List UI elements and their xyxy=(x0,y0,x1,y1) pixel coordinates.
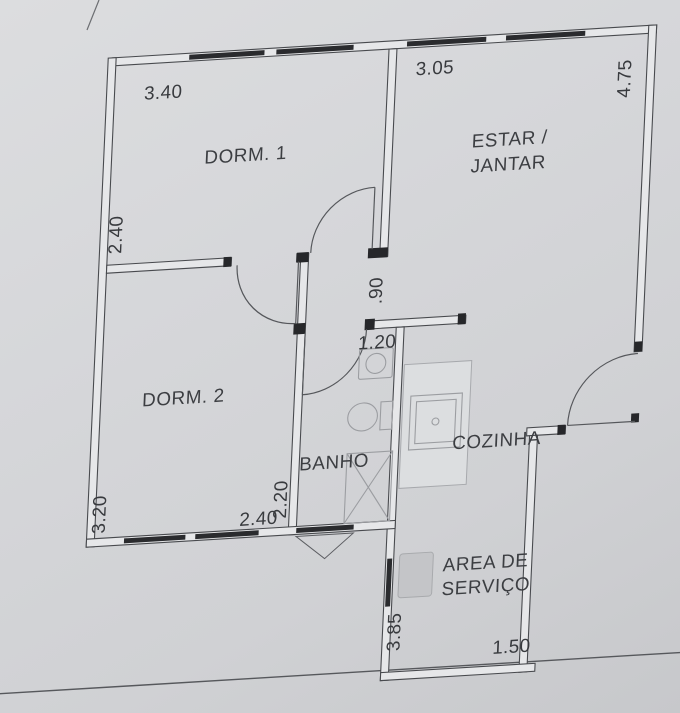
room-label-dorm2: DORM. 2 xyxy=(142,385,225,411)
wall-left xyxy=(86,58,116,548)
dim-estar-width: 3.05 xyxy=(415,57,454,80)
ground-line xyxy=(0,651,680,697)
wall-top xyxy=(112,25,657,66)
room-label-estar-line2: JANTAR xyxy=(470,152,546,178)
door-swing-dorm1 xyxy=(311,187,375,253)
floor-plan-drawing: DORM. 1 ESTAR / JANTAR DORM. 2 BANHO COZ… xyxy=(0,0,680,713)
washbasin-bowl-icon xyxy=(366,353,387,374)
paper-edge-line xyxy=(87,0,99,30)
door-swing-dorm2 xyxy=(234,262,298,328)
window-banho xyxy=(296,527,353,530)
floorplan-photo: DORM. 1 ESTAR / JANTAR DORM. 2 BANHO COZ… xyxy=(0,0,680,713)
dim-area-height: 3.85 xyxy=(384,612,407,652)
window-area-servico xyxy=(388,559,390,607)
toilet-tank-icon xyxy=(380,401,393,430)
door-leaf-exterior xyxy=(568,421,635,425)
wall-hall-top-a xyxy=(106,258,231,274)
wall-banho-top xyxy=(369,315,466,329)
wall-right-estar xyxy=(634,25,657,352)
walls xyxy=(79,25,656,699)
door-leaf-dorm1 xyxy=(372,187,375,249)
dim-dorm1-width: 3.40 xyxy=(144,81,183,104)
door-swing-banho xyxy=(302,329,366,395)
room-label-area-line1: AREA DE xyxy=(442,550,529,576)
dim-area-width: 1.50 xyxy=(492,636,531,659)
dim-dorm2-height: 3.20 xyxy=(89,495,112,535)
banho-high-window-symbol xyxy=(295,533,354,560)
room-label-cozinha: COZINHA xyxy=(452,428,542,454)
wall-dorm1-estar-divider xyxy=(380,49,397,257)
room-label-estar-line1: ESTAR / xyxy=(471,127,548,153)
dim-dorm2-width: 2.40 xyxy=(239,508,278,531)
room-label-dorm1: DORM. 1 xyxy=(204,143,287,169)
dim-hall-height: .90 xyxy=(366,276,388,305)
dim-estar-height: 4.75 xyxy=(614,59,637,99)
toilet-icon xyxy=(347,402,378,432)
laundry-tank-icon xyxy=(398,552,434,598)
room-label-area-line2: SERVIÇO xyxy=(441,574,530,600)
door-swing-exterior xyxy=(568,354,638,426)
plan-tilt-group: DORM. 1 ESTAR / JANTAR DORM. 2 BANHO COZ… xyxy=(0,21,680,707)
room-label-banho: BANHO xyxy=(299,450,370,475)
dim-dorm1-height: 2.40 xyxy=(105,215,128,255)
room-labels: DORM. 1 ESTAR / JANTAR DORM. 2 BANHO COZ… xyxy=(132,127,555,619)
dim-banho-width: 1.20 xyxy=(357,331,396,354)
